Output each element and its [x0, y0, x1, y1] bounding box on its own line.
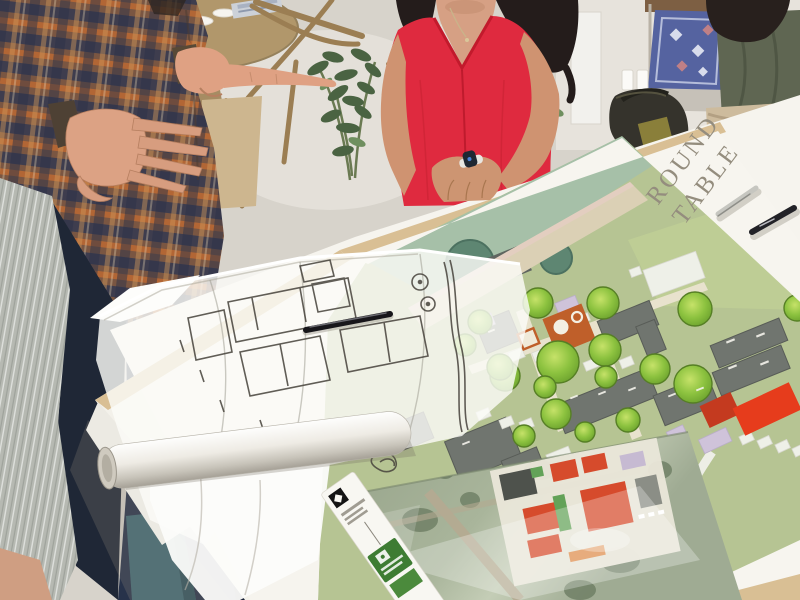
photo-canvas: ROUND TABLE: [0, 0, 800, 600]
photo-design-meeting: ROUND TABLE: [0, 0, 800, 600]
